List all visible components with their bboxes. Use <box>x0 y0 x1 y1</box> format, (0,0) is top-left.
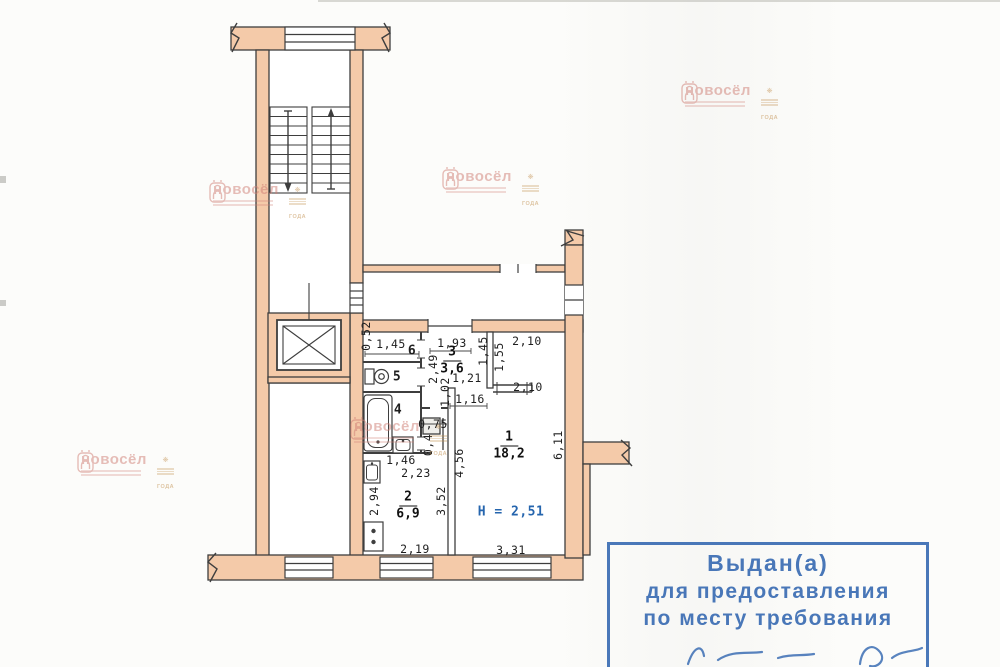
novosel-watermark: новосёл ❋ ГОДА <box>350 416 447 460</box>
room-area: 18,2 <box>493 447 524 462</box>
watermark-award-badge: ❋ ГОДА <box>289 179 306 223</box>
stove-icon <box>364 522 383 551</box>
award-star-icon: ❋ <box>436 424 442 431</box>
room-2-kitchen-label: 2 6,9 <box>396 491 419 522</box>
dim-niche-145: 1,45 <box>476 336 490 366</box>
novosel-watermark: новосёл ❋ ГОДА <box>442 166 539 210</box>
award-text: ГОДА <box>157 484 174 490</box>
watermark-tagline <box>446 187 512 193</box>
room-number: 3 <box>443 346 461 362</box>
dim-room1-top-2: 2,10 <box>513 380 543 394</box>
window-opening <box>380 557 433 578</box>
award-star-icon: ❋ <box>163 457 169 464</box>
wall-right-stub <box>583 442 629 464</box>
ceiling-height-note: H = 2,51 <box>478 505 545 520</box>
wall-left <box>256 50 269 558</box>
room-5-wc-label: 5 <box>393 370 401 385</box>
dim-kitchen-window: 2,19 <box>400 542 430 556</box>
award-text: ГОДА <box>522 201 539 207</box>
novosel-watermark: новосёл ❋ ГОДА <box>77 449 174 493</box>
dim-closet-width: 1,45 <box>376 337 406 351</box>
room-number: 2 <box>399 491 417 507</box>
stamp-line-3: по месту требования <box>610 607 926 631</box>
award-text: ГОДА <box>430 451 447 457</box>
dim-room1-left-height: 4,56 <box>452 448 466 478</box>
wall-neighbor-room-top <box>268 377 350 383</box>
neighbor-room-floor <box>268 383 350 555</box>
award-star-icon: ❋ <box>528 174 534 181</box>
dim-hall-102: 1,02 <box>438 377 452 407</box>
watermark-award-badge: ❋ ГОДА <box>430 416 447 460</box>
dim-kitchen-right-height: 3,52 <box>434 486 448 516</box>
dim-kitchen-height: 2,94 <box>367 486 381 516</box>
stamp-line-2: для предоставления <box>610 580 926 604</box>
scanned-floor-plan-page: 0,52 1,45 1,93 2,10 1,45 1,55 2,49 1,21 … <box>0 0 1000 667</box>
novosel-watermark: новосёл ❋ ГОДА <box>681 80 778 124</box>
window-opening <box>285 557 333 578</box>
watermark-tagline <box>685 101 751 107</box>
window-opening <box>285 27 355 50</box>
corridor-floor <box>363 272 565 320</box>
room-number: 1 <box>500 431 518 447</box>
novosel-watermark: новосёл ❋ ГОДА <box>209 179 306 223</box>
dim-niche-155: 1,55 <box>492 342 506 372</box>
watermark-tagline <box>354 437 420 443</box>
watermark-award-badge: ❋ ГОДА <box>157 449 174 493</box>
award-text: ГОДА <box>289 214 306 220</box>
signature <box>618 638 948 667</box>
dim-0-52: 0,52 <box>359 321 373 351</box>
award-star-icon: ❋ <box>295 187 301 194</box>
stamp-line-1: Выдан(а) <box>610 550 926 577</box>
watermark-tagline <box>213 200 279 206</box>
kitchen-sink-icon <box>364 461 380 483</box>
watermark-award-badge: ❋ ГОДА <box>761 80 778 124</box>
dim-hall-116: 1,16 <box>455 392 485 406</box>
dim-room1-window: 3,31 <box>496 543 526 557</box>
toilet-icon <box>365 369 389 384</box>
watermark-tagline <box>81 470 147 476</box>
wall-right-lower-extra <box>583 464 590 555</box>
award-star-icon: ❋ <box>767 88 773 95</box>
room-1-living-label: 1 18,2 <box>493 431 524 462</box>
wall-apartment-top <box>363 320 583 332</box>
room-6-closet-label: 6 <box>408 344 416 359</box>
room-area: 3,6 <box>440 362 463 377</box>
dim-kitchen-width: 2,23 <box>401 466 431 480</box>
award-text: ГОДА <box>761 115 778 121</box>
window-opening <box>473 557 551 578</box>
dim-room1-right-height: 6,11 <box>551 430 565 460</box>
wall-stair-right-upper <box>350 50 363 283</box>
watermark-award-badge: ❋ ГОДА <box>522 166 539 210</box>
dim-room1-top-1: 2,10 <box>512 334 542 348</box>
room-3-hall-label: 3 3,6 <box>440 346 463 377</box>
room-area: 6,9 <box>396 507 419 522</box>
